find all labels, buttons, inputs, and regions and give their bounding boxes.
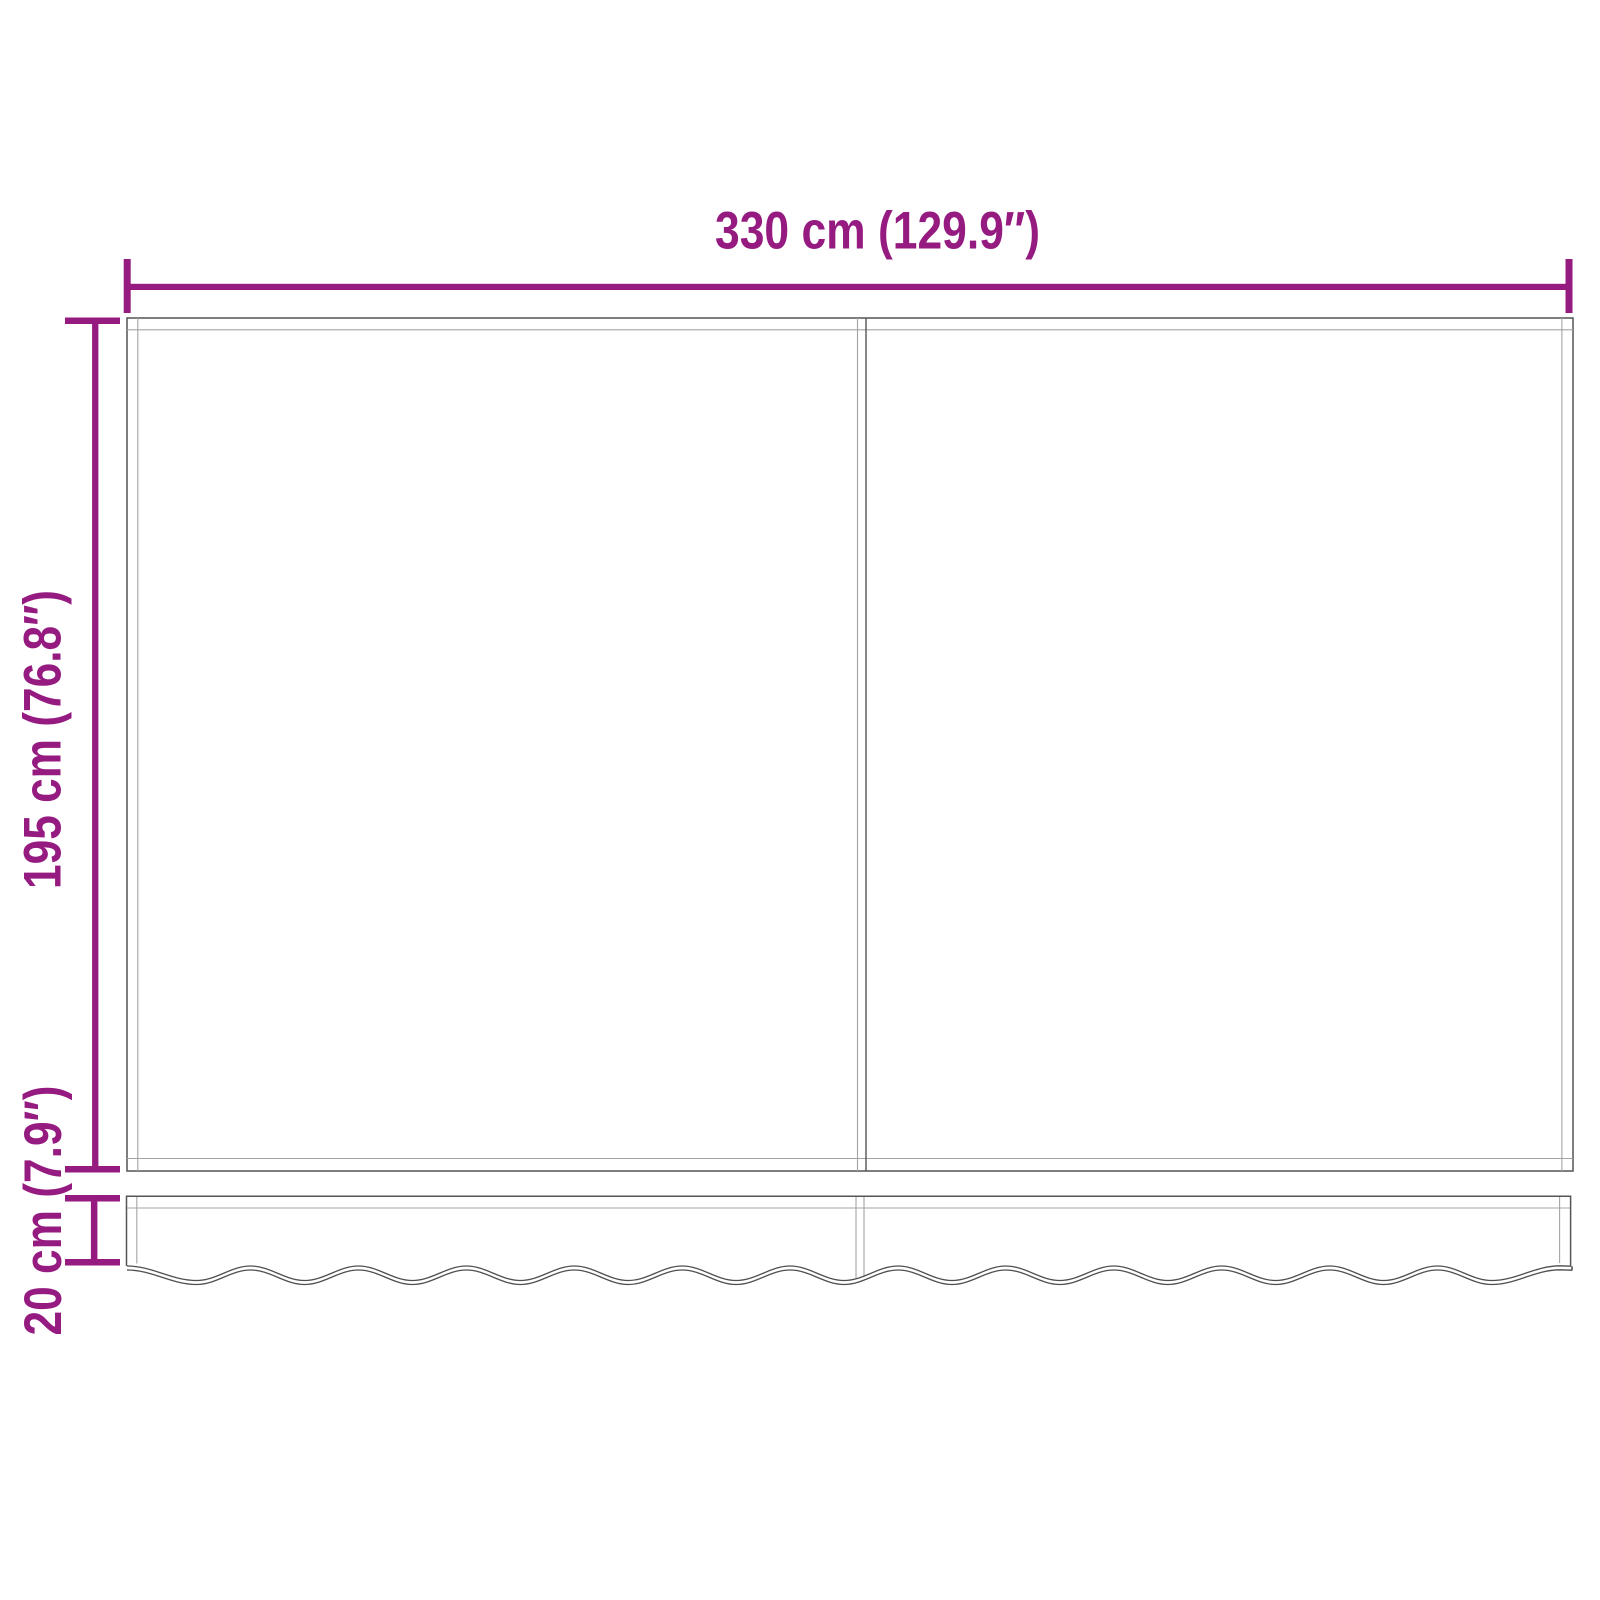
svg-text:20 cm (7.9″): 20 cm (7.9″) bbox=[14, 1086, 73, 1336]
svg-text:330 cm (129.9″): 330 cm (129.9″) bbox=[715, 202, 1040, 261]
svg-text:195 cm (76.8″): 195 cm (76.8″) bbox=[13, 590, 72, 889]
